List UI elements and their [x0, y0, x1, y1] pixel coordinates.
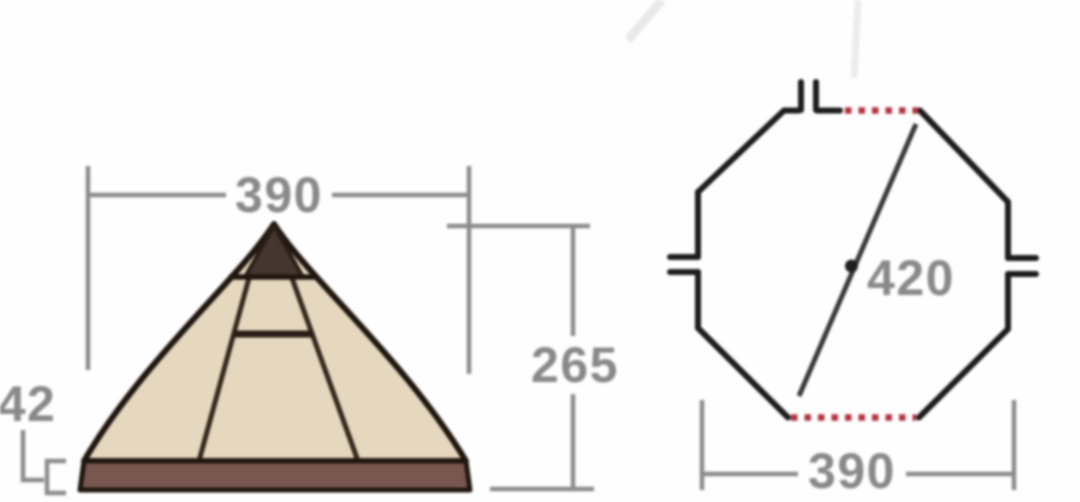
svg-text:390: 390 — [808, 443, 896, 499]
svg-text:265: 265 — [531, 337, 619, 393]
svg-text:390: 390 — [235, 167, 323, 223]
svg-text:420: 420 — [867, 250, 955, 306]
svg-text:42: 42 — [0, 376, 56, 432]
